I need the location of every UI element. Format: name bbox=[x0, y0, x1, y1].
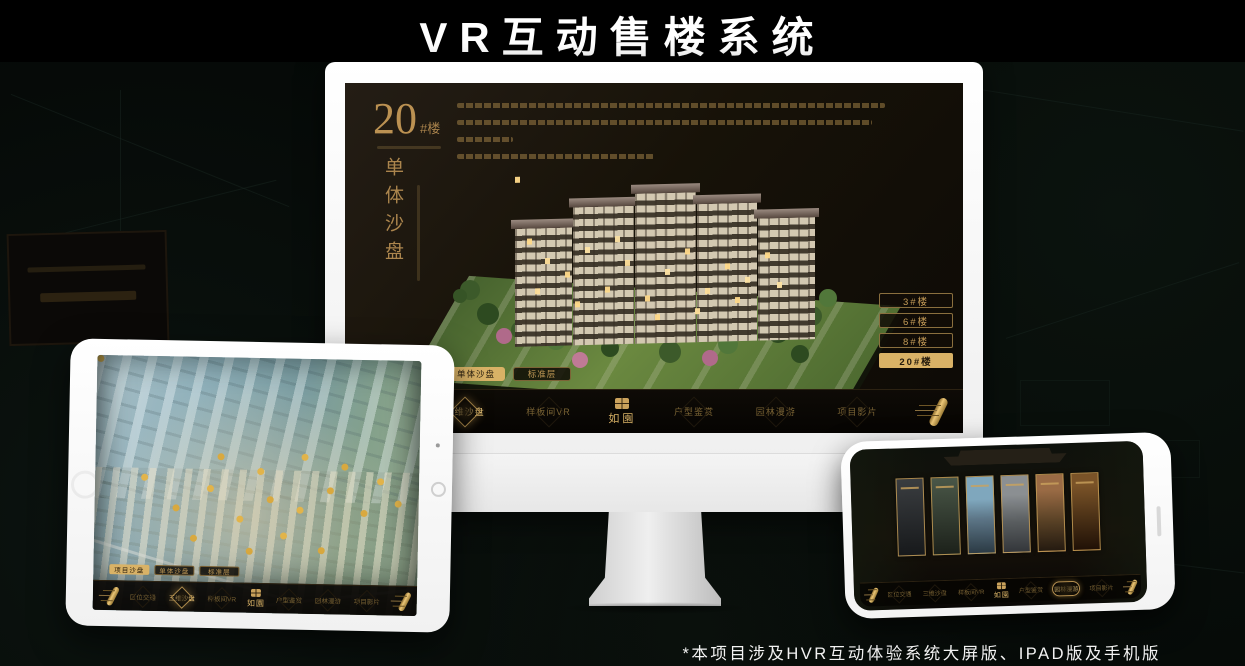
scroll-handle-icon[interactable] bbox=[391, 590, 411, 612]
building-number: 20 bbox=[373, 97, 417, 141]
project-logo-text: 如園 bbox=[247, 597, 265, 608]
nav-item-unit-plans[interactable]: 户型鉴赏 bbox=[274, 590, 304, 609]
bg-map-line bbox=[1006, 262, 1239, 339]
headline-caption: 单体沙盘 bbox=[379, 157, 406, 285]
subtab-project-sandbox[interactable]: 项目沙盘 bbox=[109, 564, 149, 575]
floor-button-group: 3#楼 6#楼 8#楼 20#楼 bbox=[879, 293, 953, 368]
headline-english-line bbox=[377, 146, 441, 149]
building-number-suffix: #楼 bbox=[420, 118, 440, 137]
description-text-line bbox=[457, 120, 872, 125]
tablet-navigation-bar: 区位交通 三维沙盘 样板间VR 如園 户型鉴赏 园林漫游 项目影片 bbox=[93, 580, 418, 616]
phone-speaker-pill bbox=[1156, 506, 1161, 536]
tablet-home-button[interactable] bbox=[431, 481, 446, 496]
nav-item-showroom-vr[interactable]: 样板间VR bbox=[956, 584, 987, 600]
nav-item-unit-plans[interactable]: 户型鉴赏 bbox=[1017, 582, 1045, 598]
gallery-panel[interactable] bbox=[1000, 474, 1030, 553]
scroll-handle-icon[interactable] bbox=[1123, 577, 1138, 595]
phone-device: 区位交通 三维沙盘 样板间VR 如園 户型鉴赏 园林漫游 项目影片 bbox=[840, 432, 1175, 619]
nav-item-showroom-vr[interactable]: 样板间VR bbox=[522, 399, 575, 424]
nav-item-garden-tour[interactable]: 园林漫游 bbox=[1052, 581, 1080, 597]
gallery-panel[interactable] bbox=[1035, 473, 1065, 552]
nav-item-project-film[interactable]: 项目影片 bbox=[833, 399, 881, 424]
tablet-camera-dot bbox=[436, 443, 440, 447]
description-text-line bbox=[457, 137, 513, 142]
bg-map-line bbox=[982, 89, 1244, 131]
tablet-screen: 项目沙盘 单体沙盘 标准层 区位交通 三维沙盘 样板间VR 如園 户型鉴赏 园林… bbox=[93, 355, 422, 616]
gallery-panel[interactable] bbox=[1070, 472, 1100, 551]
bg-award-plaque bbox=[7, 230, 170, 346]
monitor-stand-shadow bbox=[560, 602, 750, 614]
nav-item-project-film[interactable]: 项目影片 bbox=[1087, 580, 1115, 596]
project-description-block bbox=[457, 103, 885, 171]
caption-english-line bbox=[417, 185, 420, 281]
subtab-standard-floor[interactable]: 标准层 bbox=[199, 566, 239, 577]
project-seal-icon bbox=[251, 588, 261, 596]
floor-button-20[interactable]: 20#楼 bbox=[879, 353, 953, 368]
subtab-standard-floor[interactable]: 标准层 bbox=[513, 367, 571, 381]
floor-button-3[interactable]: 3#楼 bbox=[879, 293, 953, 308]
bg-map-line bbox=[11, 94, 290, 207]
page-title: VR互动售楼系统 bbox=[0, 4, 1245, 65]
nav-item-location[interactable]: 区位交通 bbox=[885, 586, 913, 602]
nav-item-project-film[interactable]: 项目影片 bbox=[352, 591, 382, 610]
monitor-stand bbox=[589, 512, 721, 606]
project-logo-text: 如園 bbox=[994, 589, 1010, 599]
panorama-gallery bbox=[850, 471, 1145, 558]
model-lit-windows bbox=[515, 177, 520, 183]
floor-button-6[interactable]: 6#楼 bbox=[879, 313, 953, 328]
description-text-line bbox=[457, 103, 885, 108]
poster-canvas: VR互动售楼系统 20#楼 单体沙盘 bbox=[0, 0, 1245, 666]
project-logo: 如園 bbox=[608, 398, 636, 426]
aerial-vignette bbox=[93, 355, 422, 616]
subtab-single-sandbox[interactable]: 单体沙盘 bbox=[447, 367, 505, 381]
subtab-single-sandbox[interactable]: 单体沙盘 bbox=[154, 565, 194, 576]
nav-item-showroom-vr[interactable]: 样板间VR bbox=[205, 588, 238, 607]
footnote-text: *本项目涉及HVR互动体验系统大屏版、IPAD版及手机版 bbox=[682, 640, 1161, 664]
project-seal-icon bbox=[997, 582, 1006, 589]
nav-item-3d-sandbox[interactable]: 三维沙盘 bbox=[920, 585, 948, 601]
description-text-line bbox=[457, 154, 654, 159]
phone-screen: 区位交通 三维沙盘 样板间VR 如園 户型鉴赏 园林漫游 项目影片 bbox=[850, 441, 1148, 611]
nav-item-3d-sandbox[interactable]: 三维沙盘 bbox=[167, 588, 197, 607]
gallery-panel[interactable] bbox=[895, 478, 925, 557]
gallery-panel[interactable] bbox=[930, 477, 960, 556]
nav-item-garden-tour[interactable]: 园林漫游 bbox=[752, 399, 800, 424]
scroll-handle-icon[interactable] bbox=[864, 586, 879, 604]
gallery-panel[interactable] bbox=[965, 475, 995, 554]
project-logo: 如園 bbox=[993, 581, 1010, 599]
scroll-handle-icon[interactable] bbox=[99, 584, 119, 606]
bg-building-outline bbox=[1020, 380, 1110, 426]
tablet-device: 项目沙盘 单体沙盘 标准层 区位交通 三维沙盘 样板间VR 如園 户型鉴赏 园林… bbox=[65, 338, 454, 632]
nav-item-garden-tour[interactable]: 园林漫游 bbox=[313, 591, 343, 610]
courtyard-roof bbox=[943, 447, 1066, 466]
floor-button-8[interactable]: 8#楼 bbox=[879, 333, 953, 348]
project-seal-icon bbox=[615, 398, 629, 409]
model-trees bbox=[453, 289, 467, 303]
project-logo-text: 如園 bbox=[608, 410, 636, 426]
model-building bbox=[515, 169, 815, 347]
project-logo: 如園 bbox=[247, 588, 265, 608]
nav-item-unit-plans[interactable]: 户型鉴赏 bbox=[670, 399, 718, 424]
nav-item-location[interactable]: 区位交通 bbox=[128, 587, 158, 606]
scroll-handle-icon[interactable] bbox=[915, 396, 949, 428]
